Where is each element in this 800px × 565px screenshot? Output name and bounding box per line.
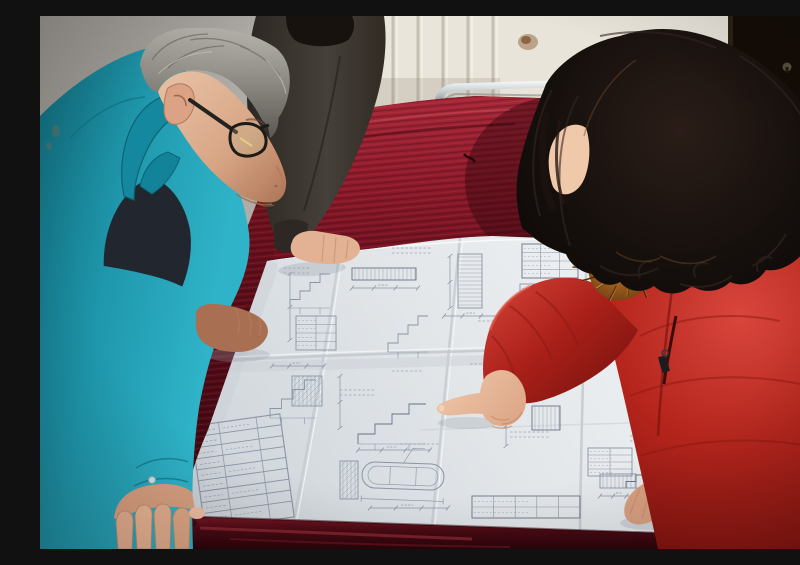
vignette <box>40 16 800 549</box>
photo-blueprint-review: Two workers lean over a large folded eng… <box>40 16 800 549</box>
